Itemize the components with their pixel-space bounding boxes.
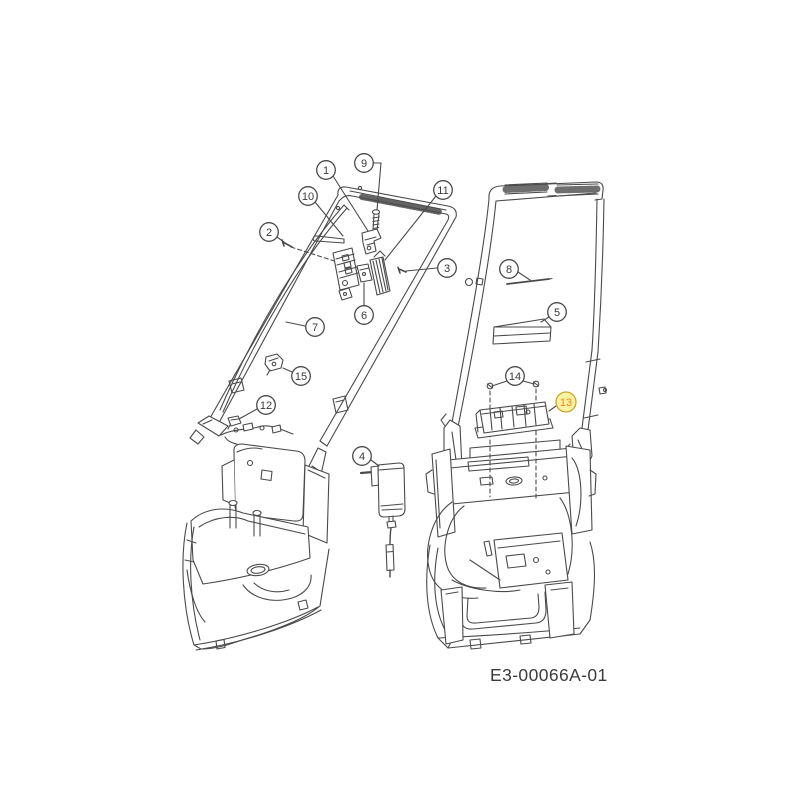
callout-10[interactable]: 10 — [299, 187, 343, 236]
callout-4[interactable]: 4 — [353, 447, 379, 466]
callout-13[interactable]: 13 — [549, 392, 576, 412]
callout-number: 7 — [312, 322, 318, 334]
callout-8[interactable]: 8 — [500, 260, 530, 280]
callout-number: 5 — [554, 307, 560, 319]
parts-diagram-page: 123456789101112131415 E3-00066A-01 — [0, 0, 800, 800]
charger-drawing — [361, 463, 405, 577]
callout-number: 15 — [295, 371, 307, 383]
callout-leader-line — [371, 460, 379, 466]
callout-number: 12 — [260, 400, 272, 412]
callout-number: 14 — [509, 371, 521, 383]
battery-drawing — [493, 319, 551, 344]
callout-15[interactable]: 15 — [283, 367, 310, 386]
callout-11[interactable]: 11 — [385, 181, 452, 260]
callout-2[interactable]: 2 — [260, 223, 284, 242]
callout-leader-line — [523, 381, 534, 384]
callout-number: 8 — [506, 264, 512, 276]
callout-leader-line — [277, 237, 284, 242]
drawing-code: E3-00066A-01 — [490, 665, 608, 686]
callout-leader-line — [286, 322, 305, 326]
callout-number: 9 — [361, 158, 367, 170]
battery-tray-drawing — [475, 381, 553, 438]
callout-7[interactable]: 7 — [286, 318, 324, 337]
callout-12[interactable]: 12 — [239, 396, 275, 419]
callout-number: 2 — [266, 227, 272, 239]
callout-leader-line — [492, 381, 507, 386]
callout-number: 13 — [560, 397, 572, 409]
callout-leader-line — [549, 406, 556, 411]
left-mower-deck-drawing — [183, 416, 329, 650]
callout-number: 11 — [437, 185, 448, 197]
callout-leader-line — [406, 268, 437, 271]
callout-6[interactable]: 6 — [355, 283, 374, 324]
exploded-parts-diagram: 123456789101112131415 — [0, 0, 800, 800]
callout-number: 1 — [323, 165, 329, 177]
callout-5[interactable]: 5 — [541, 303, 566, 322]
callout-number: 6 — [361, 310, 367, 322]
callout-leader-line — [239, 409, 257, 419]
callout-14[interactable]: 14 — [492, 367, 534, 386]
callout-number: 3 — [444, 263, 450, 275]
callout-leader-line — [518, 272, 530, 280]
callout-leader-line — [283, 368, 292, 372]
callout-number: 10 — [302, 191, 314, 203]
right-mower-deck-drawing — [426, 440, 596, 649]
callout-number: 4 — [359, 451, 365, 463]
